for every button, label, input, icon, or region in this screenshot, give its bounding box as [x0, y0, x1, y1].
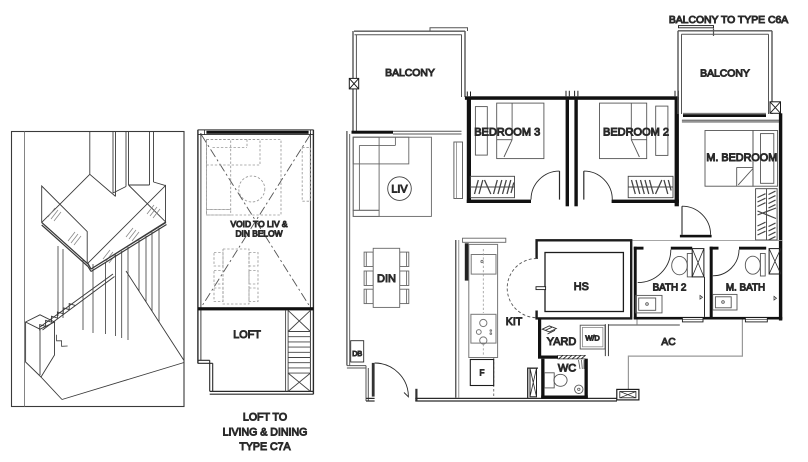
svg-text:HS: HS — [574, 281, 589, 293]
svg-text:BATH 2: BATH 2 — [653, 283, 687, 294]
svg-text:YARD: YARD — [547, 336, 577, 348]
svg-text:BEDROOM 2: BEDROOM 2 — [603, 127, 669, 139]
svg-text:LIVING & DINING: LIVING & DINING — [223, 426, 308, 438]
svg-text:M. BEDROOM: M. BEDROOM — [706, 152, 777, 164]
svg-text:VOID TO LIV &: VOID TO LIV & — [231, 219, 288, 229]
svg-text:LIV: LIV — [391, 183, 408, 195]
svg-text:DB: DB — [352, 349, 362, 358]
svg-text:M. BATH: M. BATH — [726, 283, 765, 294]
svg-text:BALCONY: BALCONY — [700, 69, 750, 80]
svg-text:TYPE C7A: TYPE C7A — [239, 441, 291, 453]
svg-text:KIT: KIT — [506, 316, 523, 328]
svg-text:W/D: W/D — [585, 334, 599, 343]
svg-text:F: F — [480, 369, 485, 378]
svg-text:BALCONY: BALCONY — [385, 68, 435, 79]
svg-text:WC: WC — [558, 363, 576, 375]
svg-text:DIN: DIN — [377, 273, 396, 285]
svg-text:LOFT TO: LOFT TO — [243, 412, 287, 424]
svg-text:DIN BELOW: DIN BELOW — [236, 229, 283, 239]
svg-text:AC: AC — [661, 337, 675, 348]
svg-text:LOFT: LOFT — [233, 329, 261, 341]
svg-text:BEDROOM 3: BEDROOM 3 — [474, 127, 540, 139]
svg-text:BALCONY TO TYPE C6A: BALCONY TO TYPE C6A — [669, 15, 788, 26]
